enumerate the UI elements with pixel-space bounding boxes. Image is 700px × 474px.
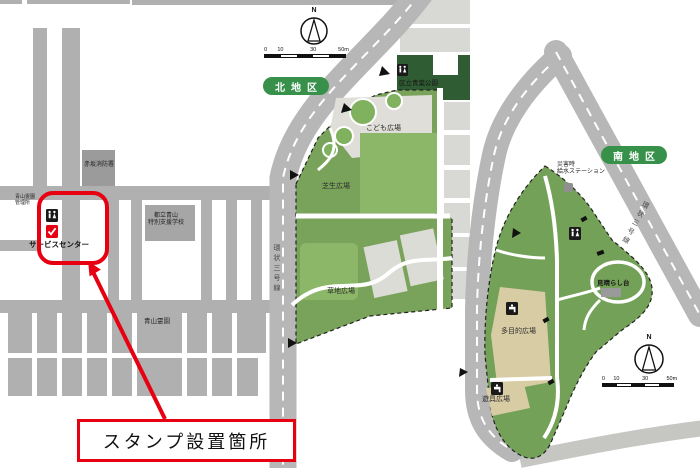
scale-tick: 0	[602, 376, 605, 382]
school-line2: 特別支援学校	[148, 220, 184, 227]
shibafu-hiroba-label: 芝生広場	[322, 183, 350, 191]
north-district	[283, 0, 470, 468]
cemetery-office-label: 青山霊園 管理所	[15, 195, 35, 207]
tamokuteki-label: 多目的広場	[501, 328, 536, 336]
street-vertical	[108, 200, 119, 300]
street-vertical	[131, 200, 142, 300]
water-station-marker	[564, 183, 573, 192]
map-canvas: 赤坂消防署 青山霊園 管理所 都立青山 特別支援学校 青山霊園 サービスセンター…	[0, 0, 700, 474]
scale-tick: 30	[642, 376, 648, 382]
compass-rose-icon	[633, 341, 665, 375]
street-vertical	[201, 200, 212, 300]
stamp-location-highlight	[37, 191, 109, 265]
school-line1: 都立青山	[148, 213, 184, 220]
street-vertical	[226, 200, 237, 300]
restroom-icon	[569, 227, 581, 245]
stamp-location-callout: スタンプ設置箇所	[77, 419, 296, 462]
north-district-badge: 北地区	[263, 77, 329, 95]
top-road-edge	[0, 0, 22, 4]
water-station-line2: 給水ステーション	[557, 169, 605, 176]
scale-tick: 50m	[666, 376, 677, 382]
shibafu-lawn	[360, 133, 437, 213]
scale-bar-south: 0 10 30 50m	[602, 376, 674, 387]
south-district-badge: 南地区	[601, 146, 667, 164]
cemetery-office-line2: 管理所	[15, 201, 35, 207]
scale-tick: 10	[613, 376, 619, 382]
tamokuteki-field	[491, 287, 551, 392]
cemetery-label: 青山霊園	[144, 318, 170, 325]
street-vertical	[62, 28, 80, 313]
scale-tick: 50m	[338, 47, 349, 53]
top-road-edge	[27, 0, 130, 4]
kusachi-hiroba-label: 草地広場	[327, 288, 355, 296]
fire-station-label: 赤坂消防署	[84, 162, 114, 169]
restroom-icon	[397, 63, 408, 81]
compass-n-label: N	[311, 7, 316, 14]
compass-n-label: N	[646, 334, 651, 341]
faucet-icon	[506, 302, 518, 320]
scale-tick: 0	[264, 47, 267, 53]
kodomo-hiroba-label: こども広場	[366, 125, 401, 133]
miharashi-platform	[601, 288, 621, 297]
school-label: 都立青山 特別支援学校	[148, 213, 184, 227]
scale-bar-north: 0 10 30 50m	[264, 47, 346, 58]
water-station-line1: 災害時	[557, 162, 605, 169]
scale-tick: 10	[277, 47, 283, 53]
scale-bar	[264, 54, 346, 58]
building-cutout	[433, 55, 458, 75]
street-vertical	[251, 200, 262, 300]
miharashi-label: 見晴らし台	[597, 280, 630, 287]
ring-road-label-north: 環状三号線	[272, 244, 280, 324]
street-horizontal	[0, 300, 298, 313]
water-station-label: 災害時 給水ステーション	[557, 162, 605, 176]
faucet-icon	[491, 382, 503, 400]
street-vertical	[33, 28, 47, 193]
scale-tick: 30	[310, 47, 316, 53]
scale-bar	[602, 383, 674, 387]
cemetery-blocks	[8, 313, 266, 396]
compass-north: N	[299, 7, 329, 46]
city-block	[400, 28, 470, 52]
compass-rose-icon	[299, 14, 329, 46]
compass-south: N	[633, 334, 665, 375]
aoba-park-label: 区立青葉公園	[399, 80, 438, 87]
